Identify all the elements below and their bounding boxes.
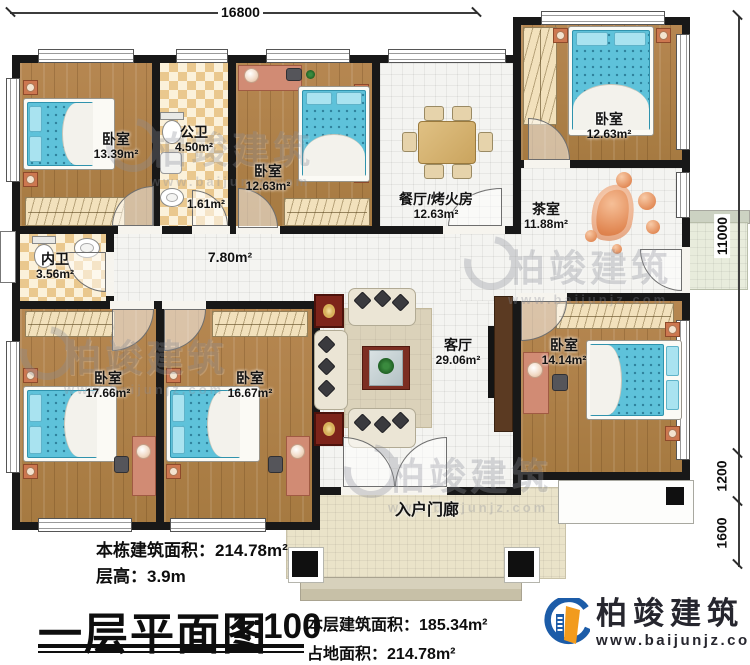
desk-lamp (290, 444, 305, 459)
window (170, 518, 266, 532)
floor-area-line: 本层建筑面积：185.34m² (307, 611, 488, 635)
porch-steps (300, 577, 522, 601)
room-label-bedroom-bottom-mid: 卧室 16.67m² (210, 371, 290, 400)
bed-pillow (172, 426, 185, 454)
dimension-line-right (738, 17, 740, 567)
wall-opening (682, 247, 690, 293)
room-label-bath-inner: 内卫 3.56m² (22, 252, 88, 281)
room-label-bedroom-bottom-left: 卧室 17.66m² (68, 371, 148, 400)
wall-opening (192, 226, 230, 234)
floor-height-line: 层高：3.9m (96, 562, 186, 587)
desk-chair (286, 68, 302, 81)
title-underline-thin (38, 651, 304, 653)
toilet (160, 112, 184, 120)
porch-column (292, 551, 318, 577)
wardrobe (25, 311, 115, 337)
window (38, 49, 134, 63)
window (676, 172, 690, 218)
wardrobe (284, 198, 370, 226)
bed-pillow (306, 92, 332, 105)
window (388, 49, 506, 63)
desk-lamp (244, 68, 259, 83)
bed-pillow (29, 106, 42, 132)
nightstand (23, 464, 38, 479)
ground-area-line: 占地面积：214.78m² (307, 640, 456, 664)
dining-chair (424, 164, 444, 179)
bed-pillow (576, 32, 608, 46)
side-cabinet (314, 412, 344, 446)
window (676, 34, 690, 150)
dining-chair (452, 106, 472, 121)
corner-column (666, 487, 684, 505)
window-box (0, 231, 16, 283)
window (6, 341, 20, 473)
decor-circle (612, 244, 622, 254)
window (266, 49, 350, 63)
nightstand (665, 322, 680, 337)
decor-circle (646, 220, 660, 234)
wall-opening (341, 487, 447, 495)
bed-pillow (666, 380, 679, 410)
table-plant (378, 358, 394, 374)
desk-chair (552, 374, 568, 391)
building-area-line: 本栋建筑面积：214.78m² (96, 536, 288, 561)
window (176, 49, 228, 63)
dining-chair (402, 132, 417, 152)
window (6, 78, 20, 182)
room-label-bedroom-top-left: 卧室 13.39m² (68, 132, 164, 161)
desk-lamp (136, 444, 151, 459)
title-underline-thick (38, 644, 304, 648)
bed-blanket (207, 391, 240, 457)
dining-chair (424, 106, 444, 121)
dining-chair (452, 164, 472, 179)
bed-pillow (29, 394, 42, 422)
porch-column (508, 551, 534, 577)
bed-pillow (29, 136, 42, 162)
wall-opening (443, 226, 505, 234)
room-label-bath-public: 公卫 4.50m² (162, 125, 226, 154)
bed-pillow (172, 394, 185, 422)
nightstand (23, 368, 38, 383)
dining-table (418, 121, 476, 164)
wall-opening (110, 301, 154, 309)
nightstand (553, 28, 568, 43)
room-label-hallway: 7.80m² (190, 250, 270, 266)
room-label-bedroom-bottom-right: 卧室 14.14m² (524, 338, 604, 367)
side-cabinet (314, 294, 344, 328)
bed-pillow (336, 92, 362, 105)
wall-opening (517, 293, 567, 301)
corridor-junction (460, 234, 521, 301)
dimension-right-label: 11000 (714, 214, 730, 258)
decor-circle (616, 172, 632, 188)
nightstand (23, 80, 38, 95)
room-label-living: 客厅 29.06m² (418, 338, 498, 367)
wardrobe (212, 311, 308, 337)
room-label-bedroom-top-right: 卧室 12.63m² (570, 112, 648, 141)
potted-plant (306, 70, 315, 79)
wall-opening (118, 226, 162, 234)
wall-opening (524, 160, 570, 168)
window (541, 11, 665, 25)
desk-chair (268, 456, 283, 473)
decor-circle (585, 230, 597, 242)
decor-circle (638, 192, 656, 210)
wall-opening (162, 301, 206, 309)
wardrobe (523, 27, 557, 125)
room-label-tea: 茶室 11.88m² (506, 202, 586, 231)
nightstand (665, 426, 680, 441)
dimension-top-label: 16800 (218, 4, 263, 20)
desk-chair (114, 456, 129, 473)
bed-pillow (614, 32, 646, 46)
dimension-right-upper-label: 1200 (714, 457, 730, 494)
nightstand (166, 368, 181, 383)
company-logo-text: 柏竣建筑 (596, 598, 750, 629)
room-label-dining: 餐厅/烤火房 12.63m² (388, 192, 484, 221)
nightstand (166, 464, 181, 479)
dining-chair (478, 132, 493, 152)
room-label-bedroom-top-mid: 卧室 12.63m² (230, 164, 306, 193)
company-logo-icon (542, 598, 590, 650)
room-label-bath-public-sub: 1.61m² (178, 198, 234, 211)
wardrobe (556, 303, 674, 329)
bed-pillow (666, 346, 679, 376)
wall-opening (106, 252, 114, 296)
dimension-right-lower-label: 1600 (714, 514, 730, 551)
bed-blanket (64, 391, 97, 457)
company-logo-url: www.baijunjz.com (596, 632, 750, 649)
bed-pillow (29, 426, 42, 454)
room-label-porch: 入户门廊 (362, 502, 492, 520)
floorplan-canvas: 16800 11000 1200 1600 (0, 0, 750, 665)
wardrobe (25, 197, 125, 226)
nightstand (656, 28, 671, 43)
window (38, 518, 132, 532)
nightstand (23, 172, 38, 187)
toilet (32, 236, 56, 244)
bed-blanket (303, 134, 365, 176)
